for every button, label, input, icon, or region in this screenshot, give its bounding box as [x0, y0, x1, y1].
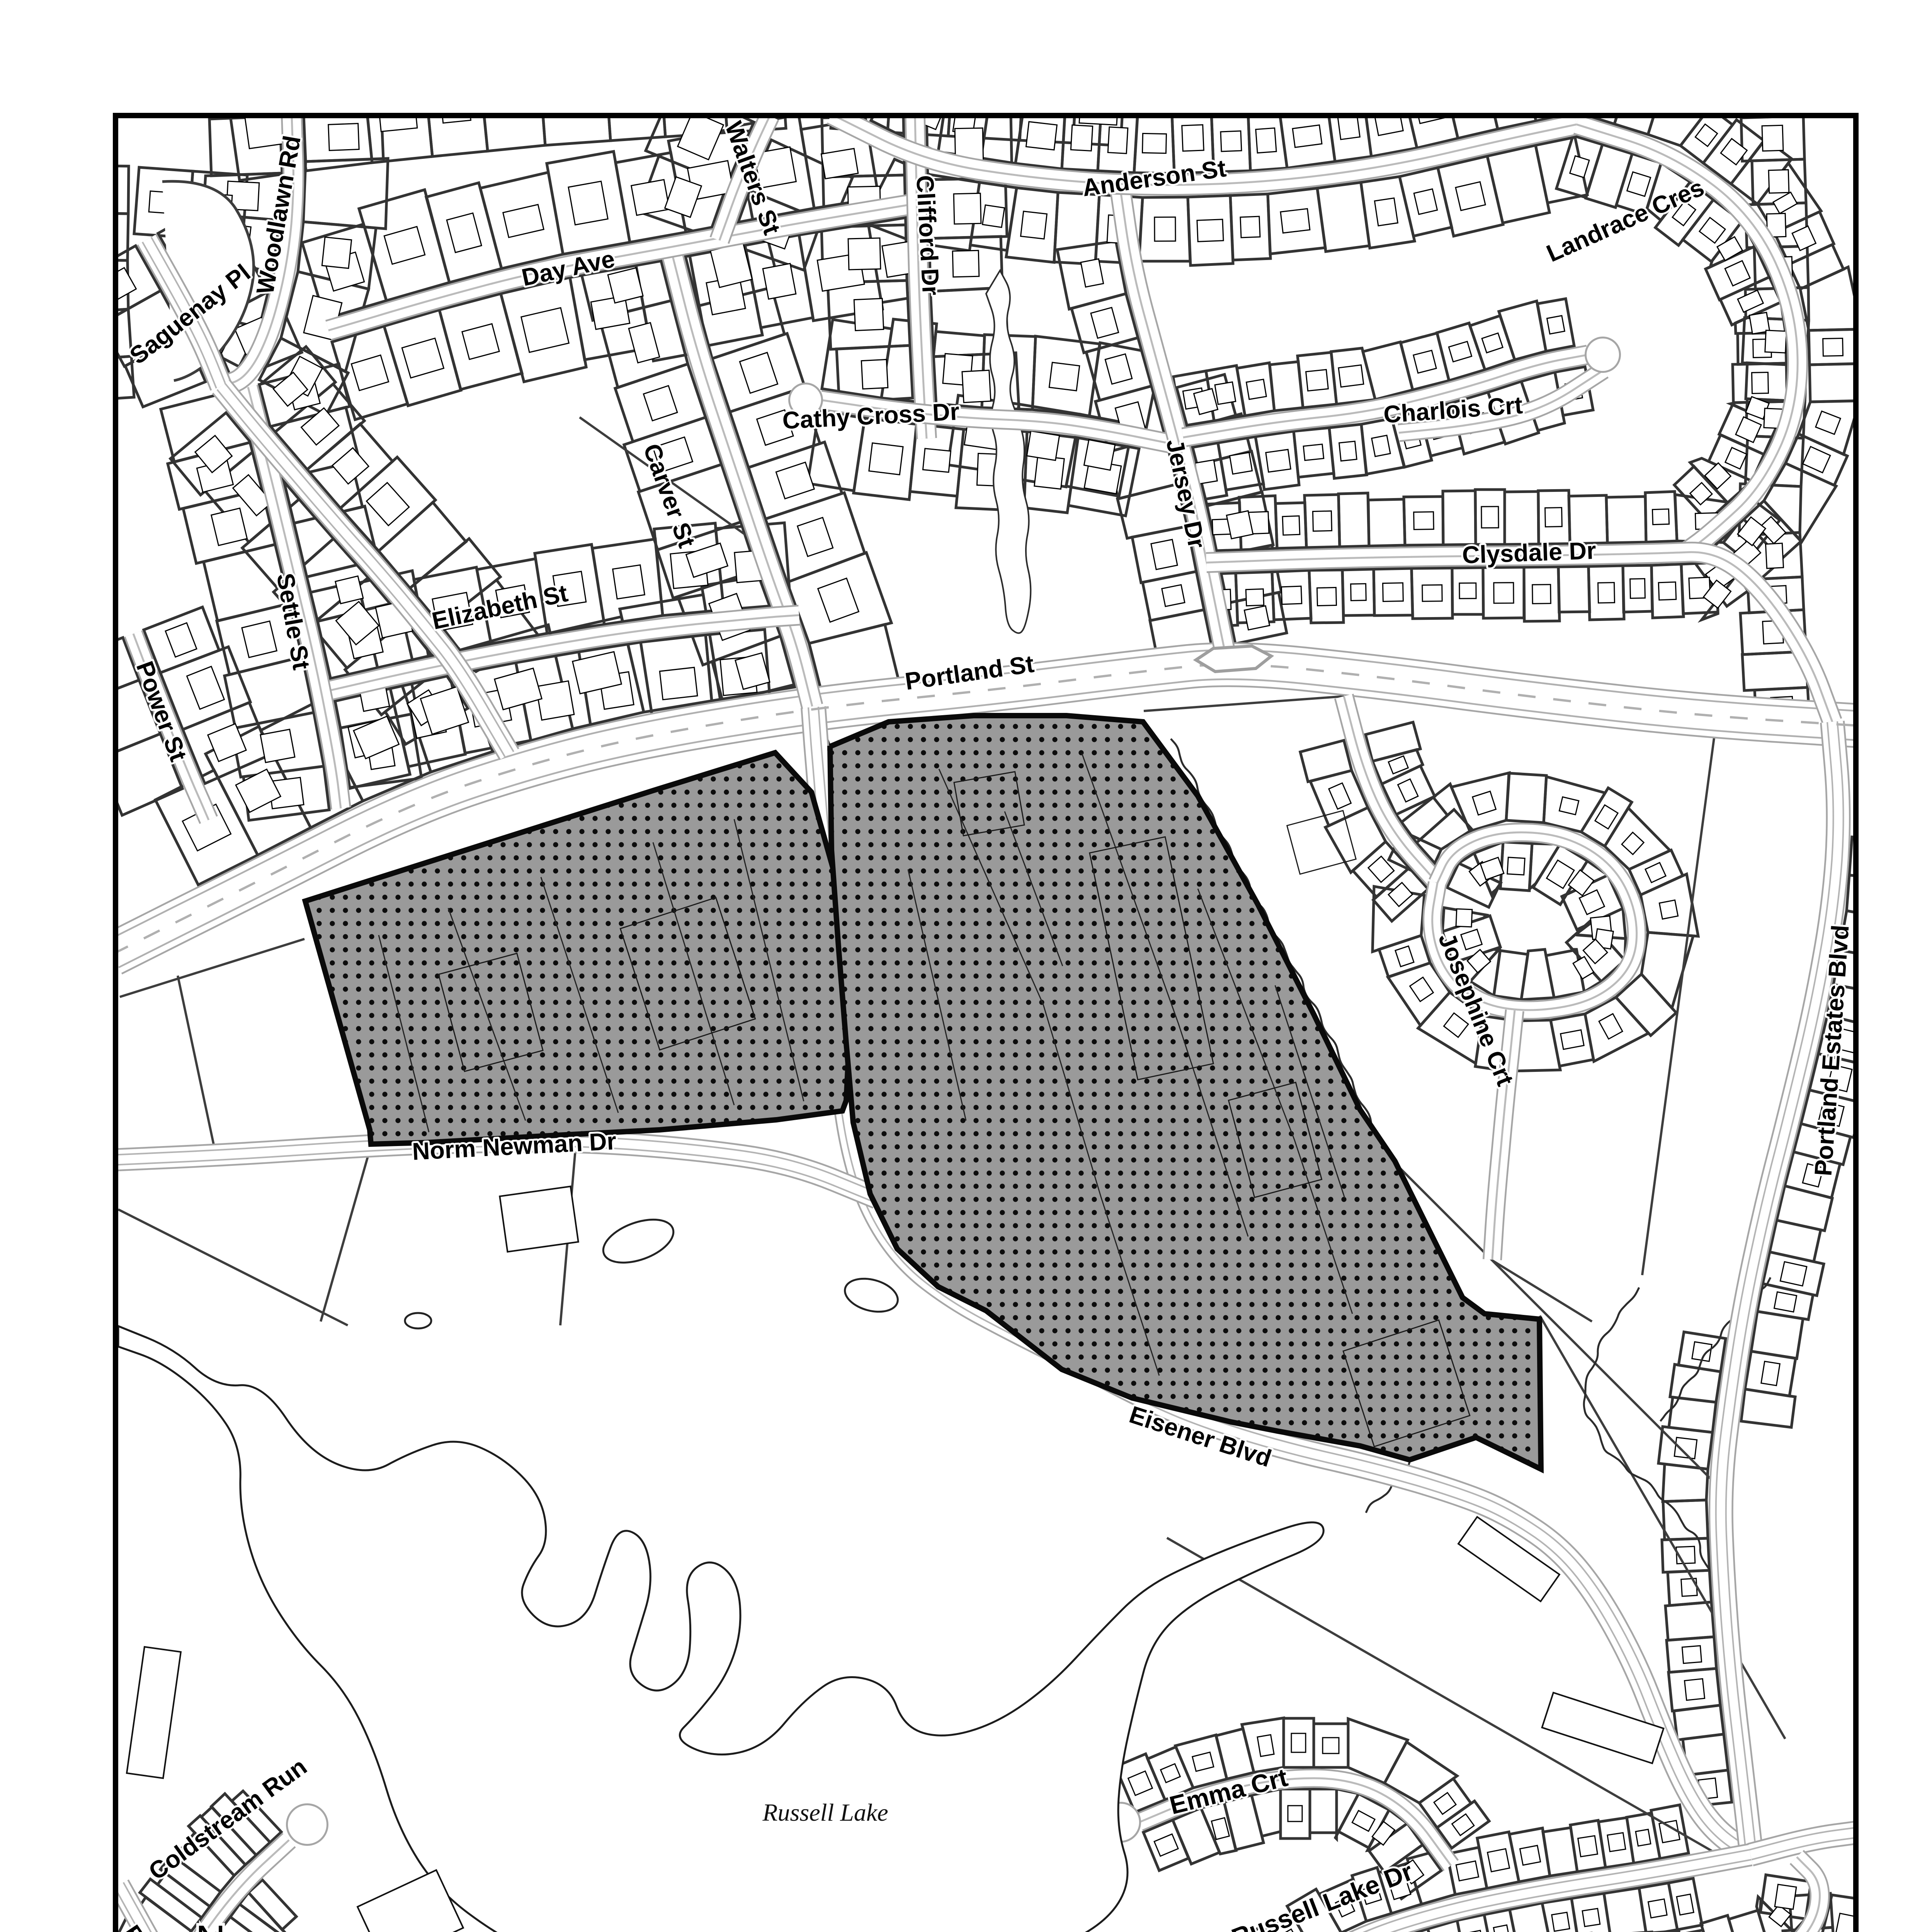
svg-text:Russell Lake: Russell Lake [762, 1799, 888, 1826]
svg-text:N: N [196, 1917, 226, 1932]
svg-text:Clysdale Dr: Clysdale Dr [1462, 537, 1597, 569]
